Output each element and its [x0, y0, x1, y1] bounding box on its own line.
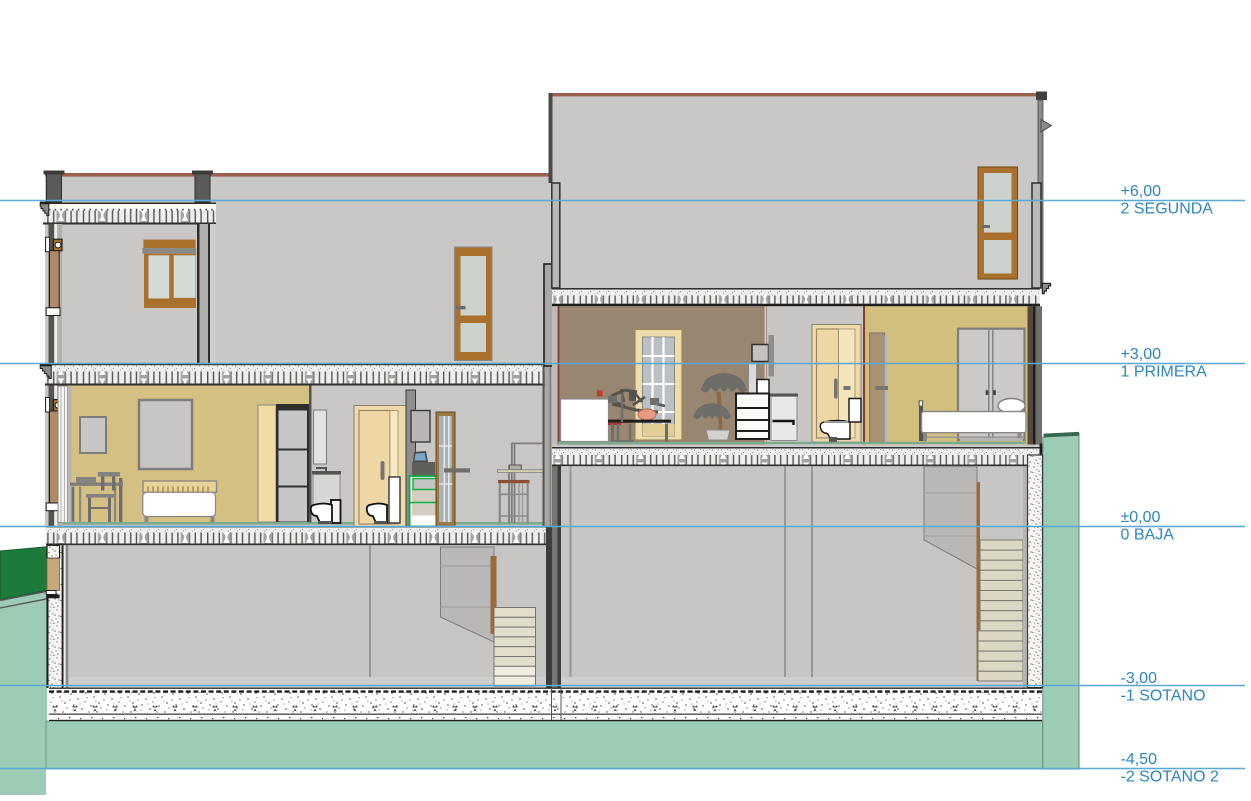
svg-text:-4,50: -4,50	[1121, 751, 1158, 768]
svg-text:±0,00: ±0,00	[1121, 509, 1161, 526]
svg-text:-2 SOTANO 2: -2 SOTANO 2	[1121, 769, 1219, 786]
svg-text:2 SEGUNDA: 2 SEGUNDA	[1121, 201, 1214, 218]
svg-text:+3,00: +3,00	[1121, 346, 1162, 363]
svg-text:-1 SOTANO: -1 SOTANO	[1121, 688, 1206, 705]
svg-text:-3,00: -3,00	[1121, 670, 1158, 687]
svg-text:1 PRIMERA: 1 PRIMERA	[1121, 364, 1208, 381]
svg-text:+6,00: +6,00	[1121, 183, 1162, 200]
svg-text:0 BAJA: 0 BAJA	[1121, 527, 1175, 544]
